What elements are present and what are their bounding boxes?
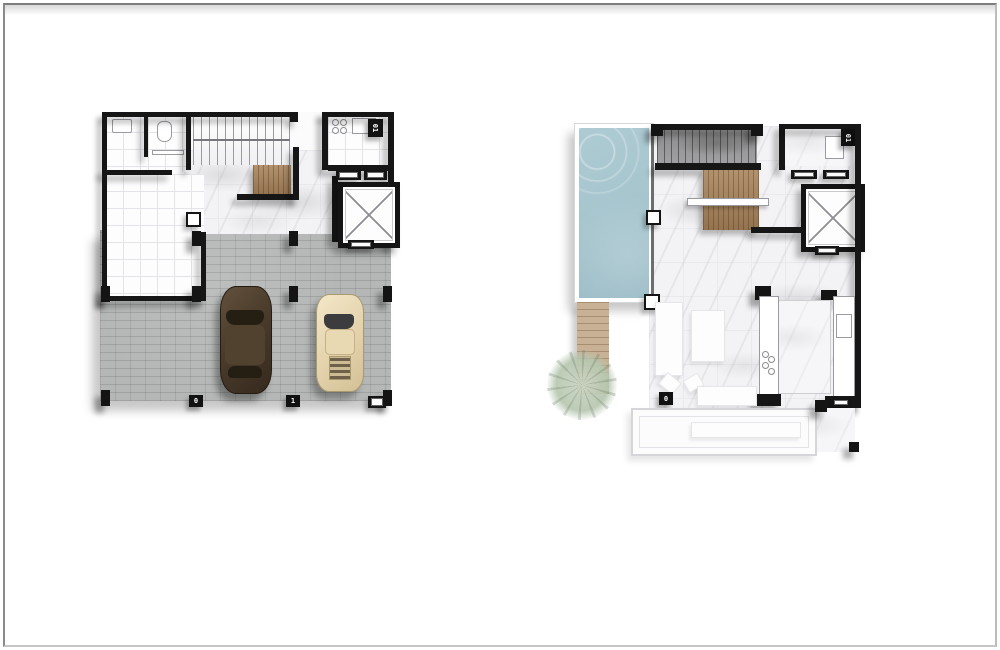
toilet-fixture bbox=[157, 121, 172, 142]
stair-railing bbox=[687, 198, 769, 206]
wall-hall-divider bbox=[751, 227, 803, 233]
grid-marker-0: 0 bbox=[189, 395, 203, 407]
kitchen-island bbox=[777, 300, 831, 394]
garage-column bbox=[101, 286, 110, 302]
sport-cabin bbox=[325, 329, 355, 355]
sport-engine-vents bbox=[329, 356, 351, 380]
wall-room-left bbox=[102, 170, 107, 301]
wall-room-top bbox=[102, 170, 172, 175]
wall-stairwell-bottom bbox=[655, 163, 761, 170]
vent-grille-3 bbox=[791, 170, 817, 179]
balcony bbox=[631, 408, 817, 456]
wall-top-left bbox=[104, 112, 290, 117]
sink-fixture bbox=[112, 119, 132, 133]
tree-plan-symbol bbox=[547, 350, 617, 420]
wall-room-right bbox=[201, 232, 206, 301]
wall-foyer-mid bbox=[237, 194, 299, 200]
sofa bbox=[697, 386, 757, 406]
elevator-door-marker-right bbox=[815, 246, 839, 255]
wall-right-edge-right-plan bbox=[855, 124, 861, 408]
wall-stairwell-top bbox=[655, 124, 763, 130]
kitchen-sink bbox=[836, 314, 852, 338]
garage-column bbox=[192, 286, 201, 302]
car-sedan-brown bbox=[218, 284, 274, 396]
sport-windshield bbox=[324, 314, 354, 329]
sedan-rear-window bbox=[228, 366, 262, 378]
kitchen-counter-right bbox=[833, 296, 855, 402]
garage-column bbox=[192, 231, 201, 246]
wall-top-right-room bbox=[779, 124, 785, 170]
kitchen-door-marker bbox=[831, 398, 851, 407]
wall-stair-right bbox=[293, 147, 299, 200]
balcony-bench bbox=[691, 422, 801, 438]
page: { "page": { "background": "#ffffff", "fr… bbox=[0, 0, 1000, 650]
swimming-pool bbox=[575, 124, 653, 302]
page-frame-shadow bbox=[5, 5, 995, 15]
bathroom-shelf bbox=[152, 150, 184, 155]
garage-column bbox=[101, 390, 110, 406]
wall-room-bottom bbox=[102, 296, 206, 301]
grid-marker-01-left: 01 bbox=[368, 119, 383, 137]
sedan-windshield bbox=[226, 310, 264, 325]
garage-column bbox=[383, 286, 392, 302]
dining-table bbox=[691, 310, 725, 362]
vent-grille-4 bbox=[823, 170, 849, 179]
kitchen-counter-left bbox=[759, 296, 779, 402]
cooktop-fixture bbox=[331, 118, 349, 136]
wall-kitchen-bottom-left bbox=[755, 394, 781, 406]
wall-bath-left bbox=[102, 112, 107, 172]
kitchen-cooktop bbox=[761, 350, 775, 376]
car-sport-cream bbox=[314, 292, 366, 394]
wall-bath-divider bbox=[144, 115, 148, 157]
storage-room-floor bbox=[106, 174, 204, 296]
column-box-foyer bbox=[186, 212, 201, 227]
column-box-pool-1 bbox=[646, 210, 661, 225]
garage-column bbox=[289, 231, 298, 246]
vent-grille-2 bbox=[364, 170, 387, 180]
grid-marker-1: 1 bbox=[286, 395, 300, 407]
grid-marker-0-right: 0 bbox=[659, 392, 673, 405]
sedan-roof bbox=[225, 325, 265, 365]
rug-runner bbox=[655, 302, 683, 376]
wall-pantry-left bbox=[322, 112, 328, 170]
grid-marker-01-right: 01 bbox=[841, 129, 855, 146]
stairwell-column bbox=[651, 124, 663, 136]
wall-bath-right bbox=[186, 112, 191, 170]
elevator-door-marker bbox=[348, 240, 374, 249]
wall-top-right bbox=[322, 112, 392, 117]
garage-column bbox=[289, 286, 298, 302]
staircase-wood-landing bbox=[253, 165, 291, 195]
lower-right-column bbox=[849, 442, 859, 452]
pool-level-floorplan: 01 0 bbox=[575, 124, 861, 458]
stairwell-column bbox=[751, 124, 763, 136]
balcony-corner-column bbox=[815, 400, 827, 412]
gate-marker bbox=[368, 396, 386, 408]
vent-grille-1 bbox=[336, 170, 361, 180]
staircase-rail-line bbox=[193, 139, 290, 141]
stairwell-dark bbox=[657, 130, 757, 163]
wall-stair-corner bbox=[290, 112, 298, 122]
garage-level-floorplan: 01 0 1 bbox=[100, 112, 398, 415]
elevator-shaft bbox=[338, 182, 400, 248]
